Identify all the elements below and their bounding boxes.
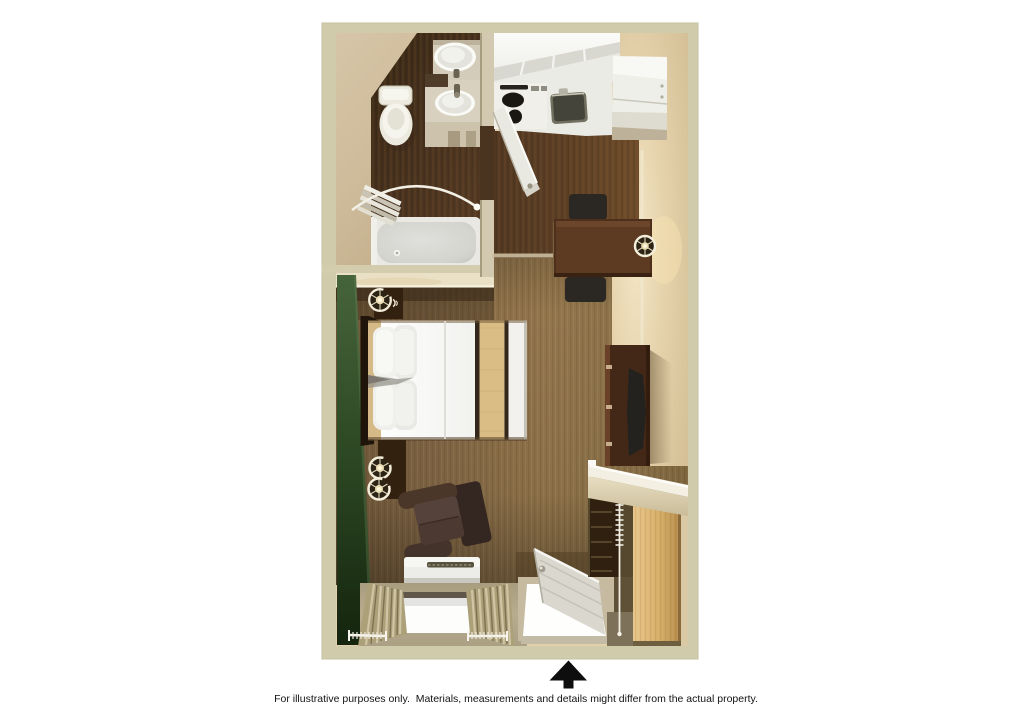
svg-text:For illustrative purposes only: For illustrative purposes only. Material… — [274, 693, 758, 705]
